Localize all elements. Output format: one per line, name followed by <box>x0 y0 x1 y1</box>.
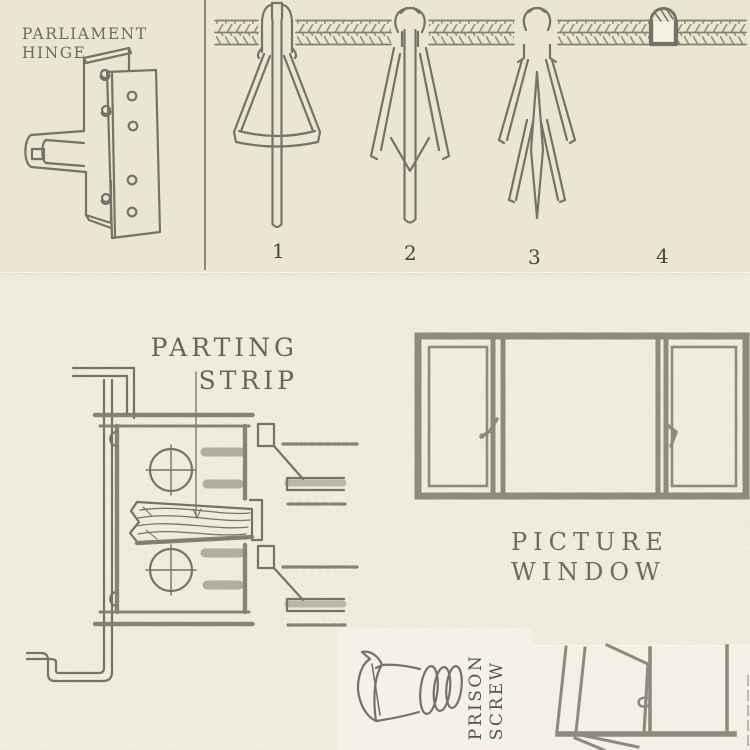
prison-screw-label-line2: SCREW <box>487 654 508 740</box>
prison-screw-drawing <box>345 645 465 750</box>
picture-window-label: PICTURE WINDOW <box>511 527 669 587</box>
scanned-dictionary-page: PARLIAMENT HINGE <box>0 0 750 750</box>
open-window-drawing <box>540 640 750 750</box>
anchor-number-4: 4 <box>656 244 669 268</box>
anchor-number-2: 2 <box>404 241 417 265</box>
prison-screw-label: PRISON SCREW <box>466 654 508 740</box>
picture-window-label-line1: PICTURE <box>511 527 669 557</box>
parting-strip-drawing <box>20 360 365 710</box>
anchor-number-1: 1 <box>272 239 285 263</box>
prison-screw-label-line1: PRISON <box>466 654 487 740</box>
parliament-hinge-drawing <box>15 38 185 248</box>
picture-window-drawing <box>410 325 750 505</box>
wall-anchors-drawing <box>205 0 750 240</box>
picture-window-label-line2: WINDOW <box>511 557 669 587</box>
anchor-4 <box>651 8 676 44</box>
anchor-number-3: 3 <box>528 245 541 269</box>
